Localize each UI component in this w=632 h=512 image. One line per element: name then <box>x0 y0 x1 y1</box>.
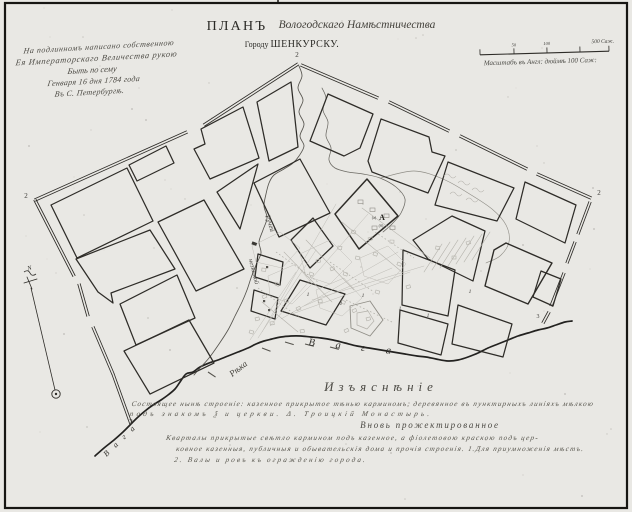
svg-text:(б): (б) <box>379 223 384 228</box>
svg-text:1: 1 <box>307 292 310 298</box>
svg-text:Городу ШЕНКУРСКУ.: Городу ШЕНКУРСКУ. <box>245 39 340 50</box>
svg-text:100: 100 <box>543 41 551 46</box>
svg-text:2: 2 <box>24 192 28 200</box>
svg-text:500 Саж.: 500 Саж. <box>591 39 614 46</box>
svg-text:Изъяснѣніе: Изъяснѣніе <box>323 379 438 394</box>
svg-text:ПЛАНЪ: ПЛАНЪ <box>207 19 268 34</box>
svg-text:А: А <box>379 213 385 222</box>
svg-text:Вновь прожектированное: Вновь прожектированное <box>360 420 500 430</box>
svg-text:1: 1 <box>362 293 365 299</box>
svg-text:ковное казенныя, публичныя и о: ковное казенныя, публичныя и обывательск… <box>175 445 585 453</box>
svg-text:Вологодскаго Намѣстничества: Вологодскаго Намѣстничества <box>279 19 436 31</box>
svg-text:3: 3 <box>537 314 540 320</box>
svg-text:Состоящее нынѣ строеніе: казен: Состоящее нынѣ строеніе: казенное прикры… <box>131 400 595 408</box>
svg-text:1: 1 <box>469 289 472 295</box>
svg-text:2: 2 <box>295 51 299 59</box>
svg-text:2: 2 <box>129 418 133 426</box>
svg-text:подъ знакомъ ѯ и церкви. Δ. Тр: подъ знакомъ ѯ и церкви. Δ. Троицкій Мон… <box>129 410 433 418</box>
svg-text:1: 1 <box>340 301 343 307</box>
svg-text:(а): (а) <box>372 215 377 220</box>
svg-text:2. Валы и ровъ къ огражденію г: 2. Валы и ровъ къ огражденію города. <box>173 456 367 464</box>
svg-text:Кварталы прикрытые свѣтло карм: Кварталы прикрытые свѣтло кармином подъ … <box>164 434 539 442</box>
svg-text:1: 1 <box>399 306 402 312</box>
svg-text:1: 1 <box>427 313 430 319</box>
svg-text:2: 2 <box>597 189 601 197</box>
